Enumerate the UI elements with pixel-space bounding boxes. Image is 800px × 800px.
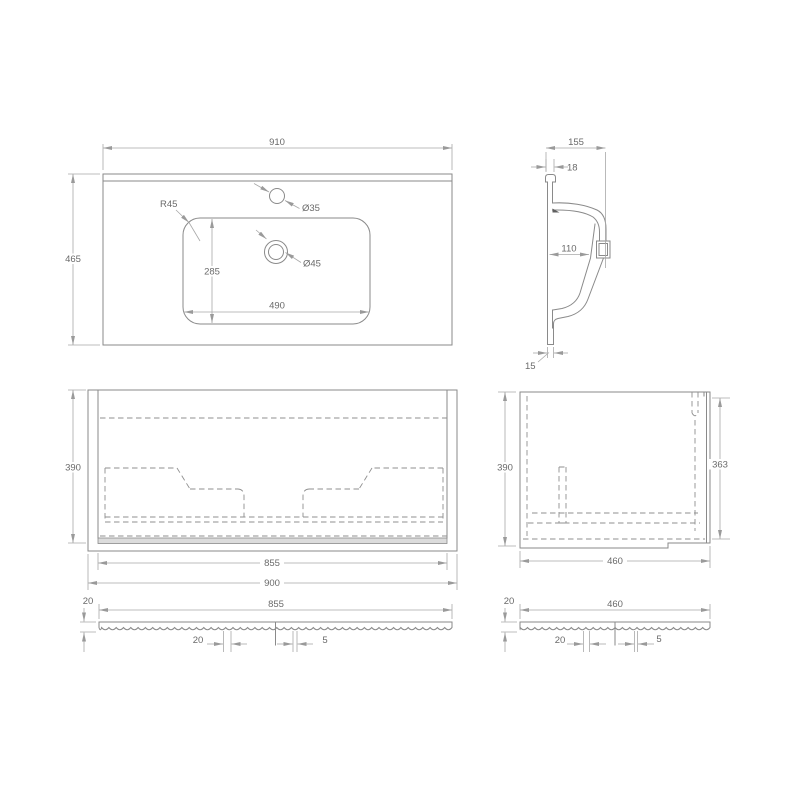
- dim-label-d35: Ø35: [302, 203, 320, 214]
- dim-label-panel-855: 855: [268, 599, 284, 610]
- dim-basin-width: 910: [103, 137, 452, 170]
- basin-plan-view: 910 465 285 490 Ø35: [61, 137, 452, 345]
- technical-drawing-page: 910 465 285 490 Ø35: [0, 0, 800, 800]
- dim-cabinet-height: 390: [61, 390, 86, 543]
- dim-side-inner-height: 363: [708, 398, 732, 539]
- dim-upstand-thickness: 18: [531, 159, 578, 174]
- cabinet-front-view: 390 855 900: [61, 390, 457, 590]
- drain-hole-outer: [265, 241, 288, 264]
- vanity-drawing-canvas: 910 465 285 490 Ø35: [0, 0, 800, 800]
- section-bottom-lip: [548, 328, 554, 345]
- hidden-wall-bracket: [692, 392, 698, 531]
- dim-front-panel-width: 855: [99, 599, 452, 619]
- dim-bowl-depth: 285: [200, 219, 224, 323]
- dim-label-r45: R45: [160, 199, 177, 210]
- dim-label-490: 490: [269, 301, 285, 312]
- dim-bottom-lip: 15: [525, 347, 568, 372]
- section-underside: [553, 210, 600, 241]
- dim-label-front-390: 390: [65, 463, 81, 474]
- drain-hole-inner: [269, 245, 284, 260]
- dim-bowl-inner-depth: 110: [550, 244, 590, 255]
- dim-label-155: 155: [568, 137, 584, 148]
- bowl-outer-wall: [554, 258, 604, 328]
- dim-label-panel-460: 460: [607, 599, 623, 610]
- leader-drain-hole: Ø45: [256, 230, 321, 270]
- dim-side-flute-gap: 5: [618, 631, 662, 652]
- hidden-drawer-back: [559, 467, 566, 523]
- dim-label-18: 18: [567, 163, 578, 174]
- dim-side-panel-width: 460: [520, 599, 710, 619]
- dim-label-panel-thickness: 20: [83, 596, 94, 607]
- dim-label-855: 855: [264, 558, 280, 569]
- hidden-bottom-lines: [523, 513, 705, 539]
- leader-faucet-hole: Ø35: [254, 184, 320, 215]
- dim-label-side-thickness: 20: [504, 596, 515, 607]
- side-panel-section: 460 20 20 5: [501, 596, 710, 652]
- dim-label-363: 363: [712, 460, 728, 471]
- dim-label-15: 15: [525, 361, 536, 372]
- dim-side-height: 390: [493, 392, 517, 546]
- front-panel-section: 855 20 20 5: [80, 596, 452, 652]
- dim-label-side-460: 460: [607, 556, 623, 567]
- cabinet-side-outline: [520, 392, 710, 548]
- dim-side-panel-thickness: 20: [501, 596, 517, 652]
- dim-side-flute-pitch: 20: [555, 631, 606, 652]
- dim-label-front-gap: 5: [322, 635, 327, 646]
- basin-section-view: 155 18 110 15: [525, 137, 610, 372]
- dim-cabinet-inner-width: 855: [98, 553, 447, 570]
- dim-label-910: 910: [269, 137, 285, 148]
- section-top-surface: [553, 203, 607, 241]
- seal-wedge: [553, 209, 560, 213]
- dim-label-110: 110: [561, 244, 576, 255]
- side-panel-lines: [98, 390, 447, 538]
- dim-front-panel-thickness: 20: [80, 596, 96, 652]
- dim-label-side-gap: 5: [656, 634, 661, 645]
- faucet-hole: [270, 189, 285, 204]
- dim-label-d45: Ø45: [303, 259, 321, 270]
- cabinet-side-view: 390 363 460: [493, 392, 732, 568]
- dim-label-285: 285: [204, 267, 220, 278]
- dim-label-side-390: 390: [497, 463, 513, 474]
- cabinet-front-outline: [88, 390, 457, 551]
- dim-side-depth: 460: [520, 546, 710, 568]
- upstand-head: [546, 175, 556, 183]
- dim-front-flute-gap: 5: [277, 631, 328, 652]
- leader-corner-radius: R45: [160, 199, 200, 241]
- overflow-box-inner: [599, 244, 608, 256]
- dim-basin-depth: 465: [61, 174, 100, 345]
- dim-label-side-pitch: 20: [555, 635, 566, 646]
- hidden-drawer-cutout: [100, 468, 447, 536]
- dim-front-flute-pitch: 20: [193, 631, 247, 652]
- dim-label-900: 900: [264, 578, 280, 589]
- dim-label-front-pitch: 20: [193, 635, 204, 646]
- dim-label-465: 465: [65, 254, 81, 265]
- bottom-rail: [98, 538, 447, 544]
